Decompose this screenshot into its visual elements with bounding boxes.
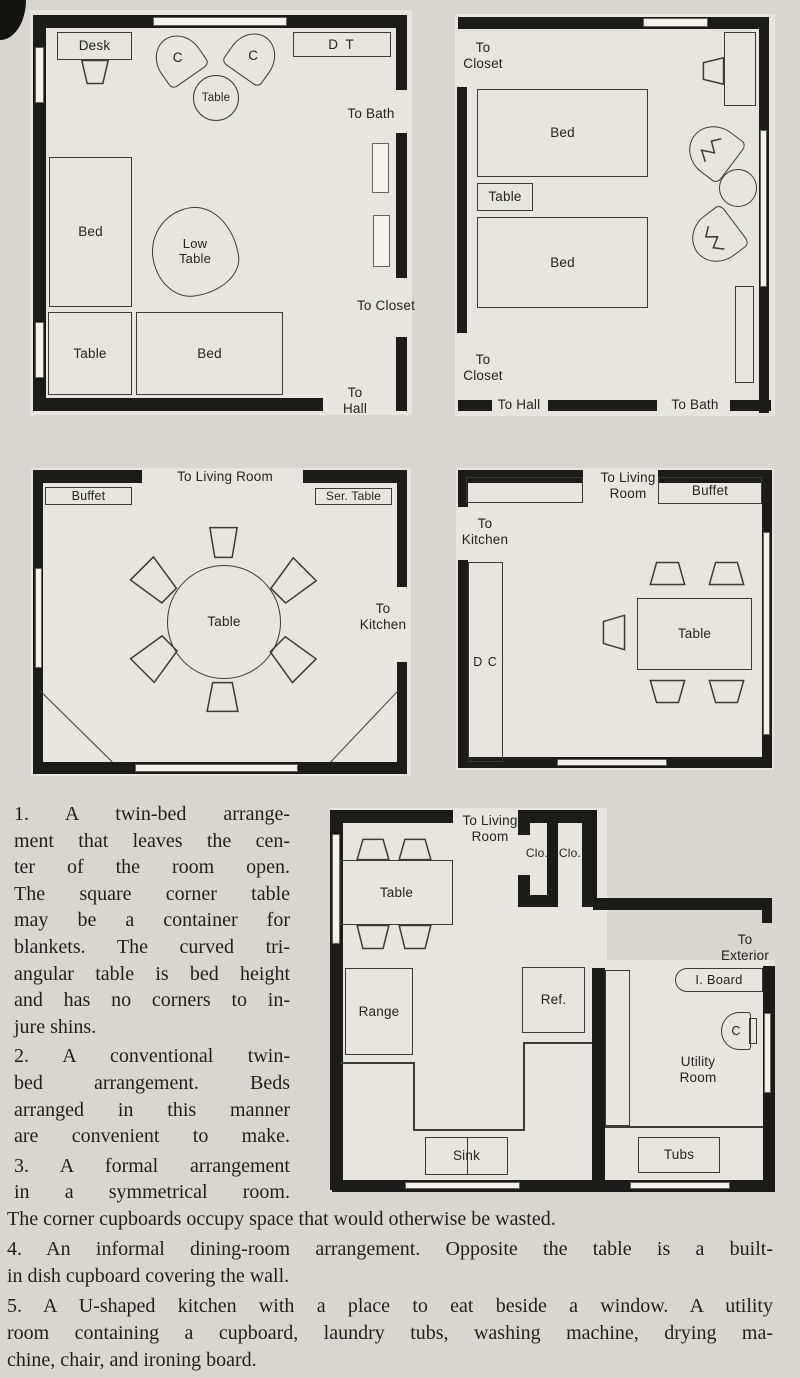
closet-door bbox=[372, 143, 389, 193]
door-label-to-kitchen: To Kitchen bbox=[353, 601, 413, 633]
window bbox=[405, 1182, 520, 1189]
window bbox=[763, 532, 770, 735]
desk: Desk bbox=[57, 32, 132, 60]
floor-plan-2-bedroom-conventional: To Closet To Closet To Hall To Bath Bed … bbox=[455, 14, 775, 416]
window bbox=[760, 130, 767, 287]
desk-chair bbox=[80, 60, 110, 84]
chair bbox=[603, 613, 625, 652]
bedside-table: Table bbox=[477, 183, 533, 211]
armchair bbox=[682, 204, 750, 273]
wall bbox=[458, 17, 768, 29]
bed: Bed bbox=[136, 312, 283, 395]
chair bbox=[707, 562, 746, 585]
round-table: Table bbox=[193, 75, 239, 121]
closet-door bbox=[373, 215, 390, 267]
wall bbox=[593, 898, 772, 910]
door-label-to-exterior: To Exterior bbox=[715, 932, 775, 964]
buffet: Buffet bbox=[658, 477, 762, 504]
door-label-to-closet: To Closet bbox=[356, 298, 416, 314]
chair bbox=[355, 839, 391, 860]
counter-edge bbox=[523, 1042, 592, 1044]
round-table bbox=[719, 169, 757, 207]
caption-paragraph-4: 4. An informal dining-room arrangement. … bbox=[7, 1236, 773, 1290]
wall bbox=[458, 560, 468, 768]
window bbox=[630, 1182, 730, 1189]
corner-cupboard bbox=[39, 690, 112, 762]
window bbox=[332, 834, 340, 944]
chair bbox=[397, 839, 433, 860]
caption-paragraph-1: 1. A twin-bed arrange- ment that leaves … bbox=[14, 801, 290, 1040]
window bbox=[643, 18, 708, 27]
wall bbox=[332, 810, 453, 823]
wall bbox=[582, 810, 597, 907]
closet-label: Clo. bbox=[557, 846, 583, 860]
wall bbox=[396, 133, 407, 278]
floor-plan-4-dining-informal: To Living Room To Kitchen Buffet D C Tab… bbox=[456, 468, 774, 770]
wall bbox=[592, 968, 605, 1192]
floor-plan-3-dining-formal: To Living Room To Kitchen Buffet Ser. Ta… bbox=[31, 468, 411, 776]
bed: Bed bbox=[477, 89, 648, 177]
chair-back bbox=[749, 1018, 757, 1044]
door-label-to-closet: To Closet bbox=[458, 40, 508, 72]
laundry-tubs: Tubs bbox=[638, 1137, 720, 1173]
window bbox=[35, 47, 44, 103]
dish-cupboard: D C bbox=[468, 562, 503, 762]
dressing-table: D T bbox=[293, 32, 391, 57]
dresser bbox=[724, 32, 756, 106]
wall bbox=[33, 398, 323, 411]
caption-paragraph-3-continued: The corner cupboards occupy space that w… bbox=[7, 1206, 773, 1233]
window bbox=[135, 764, 298, 772]
wall bbox=[730, 400, 771, 411]
scan-corner-artifact bbox=[0, 0, 26, 40]
floor-plan-5-kitchen-utility: To Living Room Clo. Clo. To Exterior Uti… bbox=[330, 808, 775, 1192]
wall bbox=[762, 910, 772, 923]
wall bbox=[303, 470, 407, 483]
door-label-to-hall: To Hall bbox=[335, 385, 375, 417]
counter-edge bbox=[523, 1042, 525, 1131]
counter-edge bbox=[340, 1062, 414, 1064]
window bbox=[35, 322, 44, 378]
caption-paragraph-5: 5. A U-shaped kitchen with a place to ea… bbox=[7, 1293, 773, 1374]
closet-label: Clo. bbox=[524, 846, 550, 860]
wall bbox=[458, 400, 492, 411]
wall bbox=[396, 15, 407, 90]
door-label-to-bath: To Bath bbox=[666, 397, 724, 413]
wall bbox=[397, 662, 407, 773]
corner-table: Table bbox=[48, 312, 132, 395]
bed: Bed bbox=[49, 157, 132, 307]
range: Range bbox=[345, 968, 413, 1055]
counter-edge bbox=[413, 1129, 524, 1131]
wall bbox=[457, 87, 467, 333]
counter-edge bbox=[413, 1062, 415, 1131]
caption-paragraph-3: 3. A formal arrangement in a symmetrical… bbox=[14, 1153, 290, 1206]
caption-paragraph-2: 2. A conventional twin- bed arrangement.… bbox=[14, 1043, 290, 1149]
wall bbox=[33, 470, 142, 483]
chair bbox=[205, 682, 240, 712]
buffet: Buffet bbox=[45, 487, 132, 505]
chair bbox=[707, 680, 746, 703]
door-label-to-living-room: To Living Room bbox=[596, 470, 660, 502]
room-label-utility: Utility Room bbox=[668, 1054, 728, 1086]
door-label-to-closet: To Closet bbox=[458, 352, 508, 384]
bed: Bed bbox=[477, 217, 648, 308]
kitchen-table: Table bbox=[340, 860, 453, 925]
counter-edge bbox=[605, 1126, 763, 1128]
window bbox=[557, 759, 667, 766]
sink: Sink bbox=[425, 1137, 508, 1175]
wall bbox=[518, 895, 549, 907]
door-label-to-living-room: To Living Room bbox=[462, 813, 518, 845]
window bbox=[764, 1013, 771, 1093]
caption-column: 1. A twin-bed arrange- ment that leaves … bbox=[14, 801, 290, 1209]
chair: C bbox=[721, 1012, 751, 1050]
chest bbox=[735, 286, 754, 383]
dining-table: Table bbox=[637, 598, 752, 670]
floor-plan-1-bedroom-open: To Bath To Closet To Hall Desk C C Table… bbox=[30, 10, 412, 415]
counter bbox=[466, 477, 583, 503]
corner-cupboard bbox=[330, 690, 399, 763]
chair bbox=[648, 562, 687, 585]
wall bbox=[396, 337, 407, 411]
ironing-board: I. Board bbox=[675, 968, 763, 992]
door-label-to-bath: To Bath bbox=[331, 106, 411, 122]
upholstery-squiggle bbox=[696, 132, 729, 166]
chair bbox=[397, 925, 433, 949]
upholstery-squiggle bbox=[699, 221, 732, 255]
door-label-to-kitchen: To Kitchen bbox=[458, 516, 512, 548]
utility-cupboard bbox=[605, 970, 630, 1126]
chair bbox=[648, 680, 687, 703]
door-label-to-living-room: To Living Room bbox=[155, 469, 295, 485]
door-label-to-hall: To Hall bbox=[493, 397, 545, 413]
scanned-book-page: { "colors": { "page_bg": "#d7d6d1", "pla… bbox=[0, 0, 800, 1378]
caption-bottom: The corner cupboards occupy space that w… bbox=[7, 1206, 773, 1377]
chair bbox=[208, 527, 239, 558]
wall bbox=[548, 400, 657, 411]
chair: C bbox=[221, 24, 285, 88]
refrigerator: Ref. bbox=[522, 967, 585, 1033]
chair bbox=[355, 925, 391, 949]
dresser-chair bbox=[703, 56, 724, 86]
window bbox=[35, 568, 42, 668]
wall bbox=[397, 470, 407, 587]
serving-table: Ser. Table bbox=[315, 488, 392, 505]
window bbox=[153, 17, 287, 26]
low-table: Low Table bbox=[146, 201, 244, 301]
